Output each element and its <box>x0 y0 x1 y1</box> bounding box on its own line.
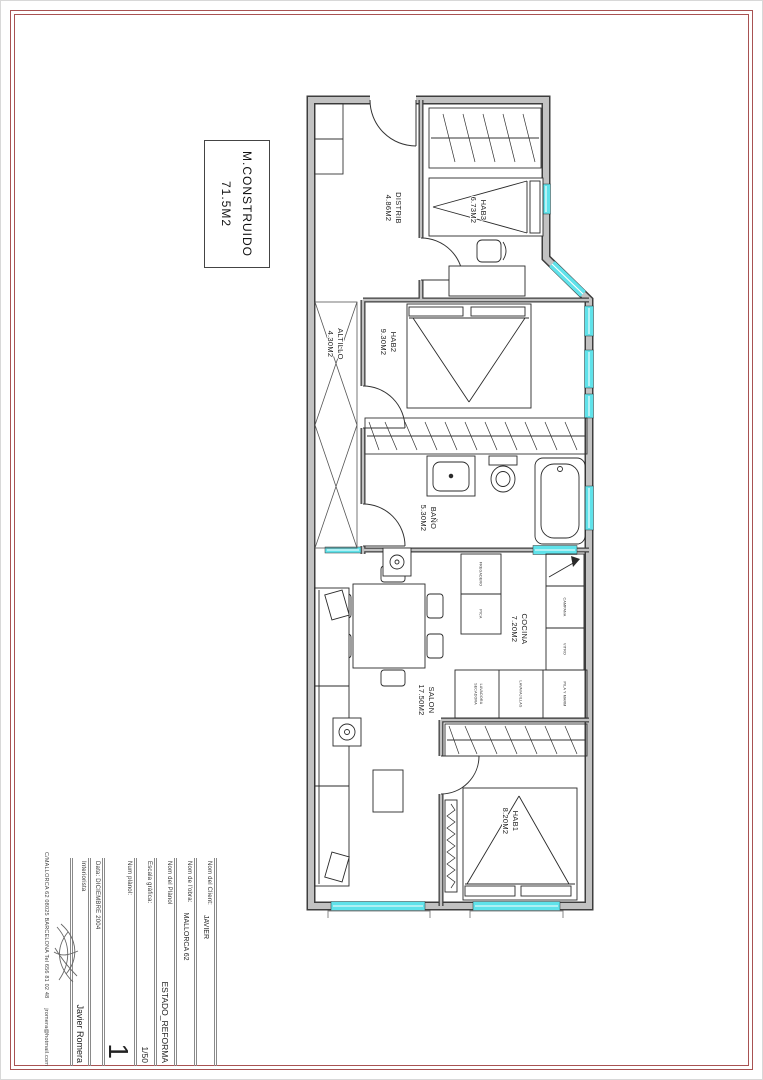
label-altillo: ALTILLO <box>336 328 345 360</box>
door-hab2 <box>363 386 405 428</box>
titleblock-value-planol: ESTADO_REFORMA <box>161 981 171 1063</box>
closet-hab3 <box>429 108 541 168</box>
label-dishwasher: LAVAVAJILLAS <box>519 681 523 708</box>
furniture <box>315 178 587 900</box>
titleblock-label-data: Data: DICIEMBRE 2004 <box>94 861 101 929</box>
floor-plan: DISTRIB 4.86M2 HAB3 6.73M2 HAB2 9.30M2 A… <box>299 88 601 918</box>
label-hab3: HAB3 <box>479 200 488 221</box>
dining-table <box>353 584 425 668</box>
door-bano <box>363 504 405 546</box>
hab1-bed <box>463 788 577 900</box>
hab2-bed <box>407 304 531 408</box>
label-washer-2: SECADORA <box>474 683 478 705</box>
hab1-radiator <box>445 800 457 892</box>
tv-unit <box>383 548 411 576</box>
side-table-lamp <box>333 718 361 746</box>
built-area-title: M.CONSTRUIDO <box>241 151 255 257</box>
label-distrib-area: 4.86M2 <box>384 195 393 222</box>
label-hood: CAMPANA <box>563 598 567 617</box>
contact-address: C/MALLORCA 62 08025 BARCELONA Tel 656 81… <box>43 852 49 998</box>
washbasin <box>427 456 475 496</box>
titleblock-label-planol: Nom del Plànol <box>166 861 173 905</box>
closet-hab2 <box>365 418 587 454</box>
contact-strip: C/MALLORCA 62 08025 BARCELONA Tel 656 81… <box>43 852 49 1066</box>
label-bano-area: 5.30M2 <box>419 505 428 532</box>
label-hab2: HAB2 <box>389 332 398 353</box>
label-hob: VITRO <box>563 643 567 655</box>
titleblock-label-escala: Escala gràfica: <box>146 861 153 903</box>
titleblock-row-client: Nom del Client: JAVIER <box>197 858 217 1066</box>
coffee-table <box>373 770 403 812</box>
titleblock-value-client: JAVIER <box>202 915 209 939</box>
door-entry <box>370 100 416 146</box>
bathtub <box>535 458 585 544</box>
hab3-chair <box>477 240 506 262</box>
hab3-desk <box>449 266 525 296</box>
window-diagonal <box>552 264 583 294</box>
titleblock-value-obra: MALLORCA 62 <box>182 913 189 961</box>
label-altillo-area: 4.30M2 <box>326 331 335 358</box>
label-washer-1: LAVADORA <box>479 684 483 705</box>
closet-hab1 <box>445 724 587 756</box>
label-bano: BAÑO <box>429 507 438 529</box>
title-block: Nom del Client: JAVIER Nom de l'obra: MA… <box>70 858 217 1066</box>
kitchen-vent-arrow <box>549 556 580 577</box>
label-cocina-area: 7.20M2 <box>510 616 519 643</box>
label-sink-counter: PILA Y MARM <box>563 681 567 706</box>
signature-flourish-icon <box>51 918 81 990</box>
label-hab1: HAB1 <box>511 811 520 832</box>
titleblock-row-escala: Escala gràfica: 1/50 <box>137 858 157 1066</box>
titleblock-value-num: 1 <box>106 1043 131 1063</box>
titleblock-label-interiorista: Interiorista <box>80 861 87 891</box>
label-hab3-area: 6.73M2 <box>469 197 478 224</box>
titleblock-value-escala: 1/50 <box>141 1046 151 1063</box>
titleblock-value-interiorista: Javier Romera <box>76 1004 86 1063</box>
label-cocina: COCINA <box>520 614 529 645</box>
label-salon-area: 17.50M2 <box>417 684 426 715</box>
contact-email: jromera@hotmail.com <box>43 1008 49 1066</box>
label-unit-a: FREGADERO <box>479 562 483 587</box>
drawing-sheet: M.CONSTRUIDO 71.5M2 <box>0 0 763 1080</box>
balcony-ledges <box>328 911 563 918</box>
titleblock-row-data: Data: DICIEMBRE 2004 <box>91 858 105 1066</box>
label-hab1-area: 8.20M2 <box>501 808 510 835</box>
toilet <box>489 456 517 492</box>
label-unit-b: PICA <box>479 609 483 619</box>
page: M.CONSTRUIDO 71.5M2 <box>0 0 763 1080</box>
titleblock-row-num: Num plànol: 1 <box>105 858 137 1066</box>
built-area-box: M.CONSTRUIDO 71.5M2 <box>204 140 270 268</box>
label-salon: SALON <box>427 687 436 714</box>
built-area-value: 71.5M2 <box>220 181 234 227</box>
titleblock-row-planol: Nom del Plànol ESTADO_REFORMA <box>157 858 177 1066</box>
titleblock-label-obra: Nom de l'obra: <box>186 861 193 903</box>
titleblock-row-obra: Nom de l'obra: MALLORCA 62 <box>177 858 197 1066</box>
label-distrib: DISTRIB <box>394 192 403 224</box>
entry-cabinet <box>315 104 343 174</box>
titleblock-label-num: Num plànol: <box>126 861 133 895</box>
titleblock-label-client: Nom del Client: <box>206 861 213 905</box>
label-hab2-area: 9.30M2 <box>379 329 388 356</box>
